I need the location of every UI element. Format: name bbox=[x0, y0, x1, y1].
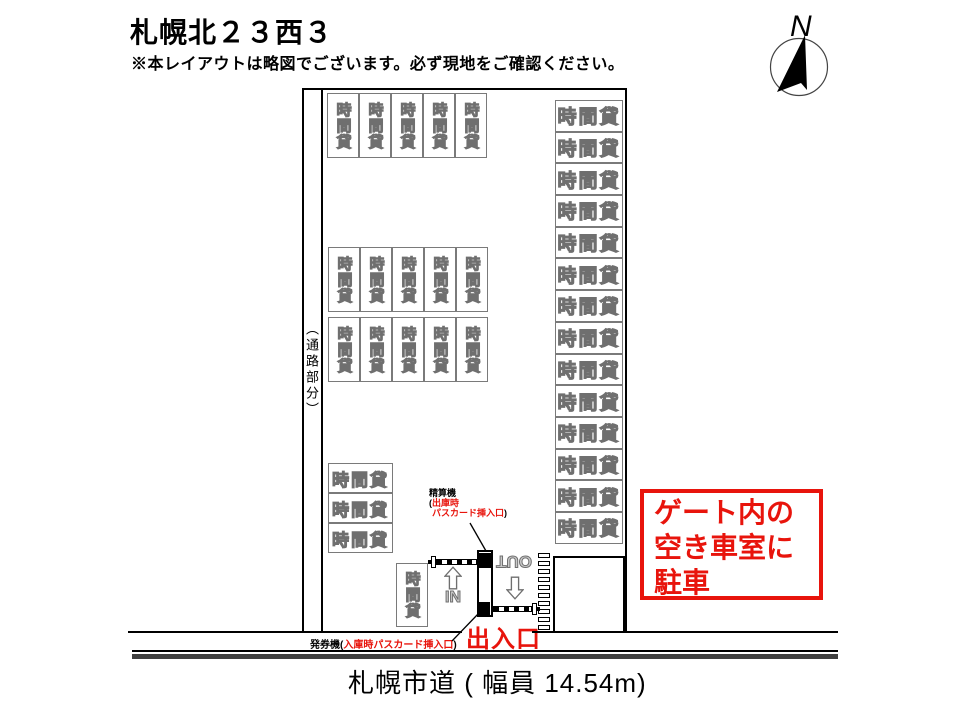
parking-stall: 時間貸 bbox=[555, 449, 623, 481]
stall-group-middle-upper: 時間貸時間貸時間貸時間貸時間貸 bbox=[328, 247, 488, 312]
parking-stall: 時間貸 bbox=[360, 247, 392, 312]
parking-stall: 時間貸 bbox=[555, 132, 623, 164]
fence-rung bbox=[538, 561, 550, 566]
stall-group-east-column: 時間貸時間貸時間貸時間貸時間貸時間貸時間貸時間貸時間貸時間貸時間貸時間貸時間貸時… bbox=[555, 100, 623, 544]
compass-north-icon: N bbox=[763, 5, 843, 105]
entry-gate-arm-nub bbox=[428, 560, 431, 564]
stall-label: 時間貸 bbox=[462, 256, 483, 304]
stall-label: 時間貸 bbox=[430, 256, 451, 304]
stall-label: 時間貸 bbox=[366, 326, 387, 374]
stall-label: 時間貸 bbox=[557, 197, 620, 224]
parking-stall: 時間貸 bbox=[456, 247, 488, 312]
stall-label: 時間貸 bbox=[557, 134, 620, 161]
stall-label: 時間貸 bbox=[398, 256, 419, 304]
stall-label: 時間貸 bbox=[429, 102, 450, 150]
stall-label: 時間貸 bbox=[462, 326, 483, 374]
stall-label: 時間貸 bbox=[557, 261, 620, 288]
parking-stall: 時間貸 bbox=[555, 385, 623, 417]
pay-machine-icon bbox=[479, 553, 493, 568]
parking-stall: 時間貸 bbox=[555, 258, 623, 290]
stall-label: 時間貸 bbox=[557, 166, 620, 193]
pay-machine-label: 精算機 (出庫時 パスカード挿入口) bbox=[429, 488, 507, 518]
exit-gate-arm-nub bbox=[537, 607, 540, 611]
property-line bbox=[532, 631, 838, 633]
page-title: 札幌北２３西３ bbox=[130, 11, 333, 51]
parking-stall: 時間貸 bbox=[359, 93, 391, 158]
road-bar bbox=[132, 654, 838, 659]
parking-stall: 時間貸 bbox=[555, 163, 623, 195]
parking-stall: 時間貸 bbox=[328, 463, 393, 493]
in-arrow-icon bbox=[444, 566, 462, 590]
stall-group-southwest: 時間貸時間貸時間貸 bbox=[328, 463, 393, 553]
disclaimer-note: ※本レイアウトは略図でございます。必ず現地をご確認ください。 bbox=[131, 50, 624, 74]
aisle-label: （通路部分） bbox=[301, 295, 322, 445]
ticket-machine-icon bbox=[477, 602, 490, 616]
road-edge-line bbox=[132, 650, 838, 652]
compass-needle-icon bbox=[777, 35, 807, 92]
entry-gate-arm bbox=[436, 559, 477, 565]
stall-label: 時間貸 bbox=[557, 451, 620, 478]
property-line bbox=[128, 631, 462, 633]
parking-stall: 時間貸 bbox=[423, 93, 455, 158]
stall-label: 時間貸 bbox=[557, 483, 620, 510]
parking-stall: 時間貸 bbox=[555, 480, 623, 512]
parking-stall: 時間貸 bbox=[455, 93, 487, 158]
notice-box: ゲート内の 空き車室に 駐車 bbox=[640, 489, 823, 600]
parking-stall: 時間貸 bbox=[392, 247, 424, 312]
ticket-machine-label: 発券機(入庫時パスカード挿入口) bbox=[310, 636, 457, 651]
stall-group-middle-lower: 時間貸時間貸時間貸時間貸時間貸 bbox=[328, 317, 488, 382]
entry-gate-arm-cap bbox=[431, 556, 436, 568]
notice-line: 駐車 bbox=[654, 565, 819, 600]
parking-stall: 時間貸 bbox=[555, 227, 623, 259]
parking-layout-map: 札幌北２３西３ ※本レイアウトは略図でございます。必ず現地をご確認ください。 N… bbox=[0, 0, 960, 718]
stall-label: 時間貸 bbox=[557, 514, 620, 541]
fence-rung bbox=[538, 593, 550, 598]
stall-label: 時間貸 bbox=[366, 256, 387, 304]
parking-stall: 時間貸 bbox=[328, 317, 360, 382]
parking-stall: 時間貸 bbox=[555, 417, 623, 449]
pay-machine-detail: 出庫時 bbox=[432, 498, 459, 508]
parking-stall: 時間貸 bbox=[424, 247, 456, 312]
parking-stall: 時間貸 bbox=[396, 563, 428, 627]
out-label: OUT bbox=[495, 551, 533, 571]
parking-stall: 時間貸 bbox=[392, 317, 424, 382]
parking-stall: 時間貸 bbox=[328, 247, 360, 312]
paren: ) bbox=[504, 508, 507, 518]
stall-label: 時間貸 bbox=[397, 102, 418, 150]
parking-stall: 時間貸 bbox=[555, 512, 623, 544]
entrance-exit-label: 出入口 bbox=[466, 619, 541, 654]
parking-stall: 時間貸 bbox=[555, 195, 623, 227]
parking-stall: 時間貸 bbox=[328, 493, 393, 523]
stall-label: 時間貸 bbox=[557, 102, 620, 129]
stall-label: 時間貸 bbox=[557, 356, 620, 383]
stall-label: 時間貸 bbox=[557, 292, 620, 319]
fence-rung bbox=[538, 585, 550, 590]
stall-label: 時間貸 bbox=[334, 326, 355, 374]
stall-label: 時間貸 bbox=[365, 102, 386, 150]
pay-machine-detail: パスカード挿入口 bbox=[432, 508, 504, 518]
stall-label: 時間貸 bbox=[461, 102, 482, 150]
notice-line: 空き車室に bbox=[654, 530, 819, 565]
stall-label: 時間貸 bbox=[332, 496, 389, 521]
fence-rung bbox=[538, 601, 550, 606]
stall-label: 時間貸 bbox=[332, 526, 389, 551]
road-label: 札幌市道 ( 幅員 14.54m) bbox=[348, 663, 647, 700]
parking-stall: 時間貸 bbox=[555, 290, 623, 322]
fence-rung bbox=[538, 553, 550, 558]
parking-stall: 時間貸 bbox=[555, 100, 623, 132]
fence-rung bbox=[538, 577, 550, 582]
stall-label: 時間貸 bbox=[333, 102, 354, 150]
stall-group-top-row: 時間貸時間貸時間貸時間貸時間貸 bbox=[327, 93, 487, 158]
stall-label: 時間貸 bbox=[557, 419, 620, 446]
stall-label: 時間貸 bbox=[430, 326, 451, 374]
parking-stall: 時間貸 bbox=[327, 93, 359, 158]
pay-machine-name: 精算機 bbox=[429, 488, 456, 498]
in-label: IN bbox=[441, 589, 465, 607]
fence-rung bbox=[538, 569, 550, 574]
parking-stall: 時間貸 bbox=[555, 354, 623, 386]
stall-label: 時間貸 bbox=[398, 326, 419, 374]
stall-group-gate-side: 時間貸 bbox=[396, 563, 428, 627]
stall-label: 時間貸 bbox=[557, 229, 620, 256]
empty-bay-box bbox=[553, 556, 625, 633]
out-arrow-icon bbox=[506, 575, 524, 601]
parking-stall: 時間貸 bbox=[424, 317, 456, 382]
parking-stall: 時間貸 bbox=[328, 523, 393, 553]
parking-stall: 時間貸 bbox=[391, 93, 423, 158]
parking-stall: 時間貸 bbox=[456, 317, 488, 382]
stall-label: 時間貸 bbox=[332, 466, 389, 491]
exit-gate-arm bbox=[493, 606, 532, 612]
stall-label: 時間貸 bbox=[334, 256, 355, 304]
notice-line: ゲート内の bbox=[654, 495, 819, 530]
parking-stall: 時間貸 bbox=[360, 317, 392, 382]
stall-label: 時間貸 bbox=[557, 388, 620, 415]
stall-label: 時間貸 bbox=[402, 571, 423, 619]
parking-stall: 時間貸 bbox=[555, 322, 623, 354]
stall-label: 時間貸 bbox=[557, 324, 620, 351]
